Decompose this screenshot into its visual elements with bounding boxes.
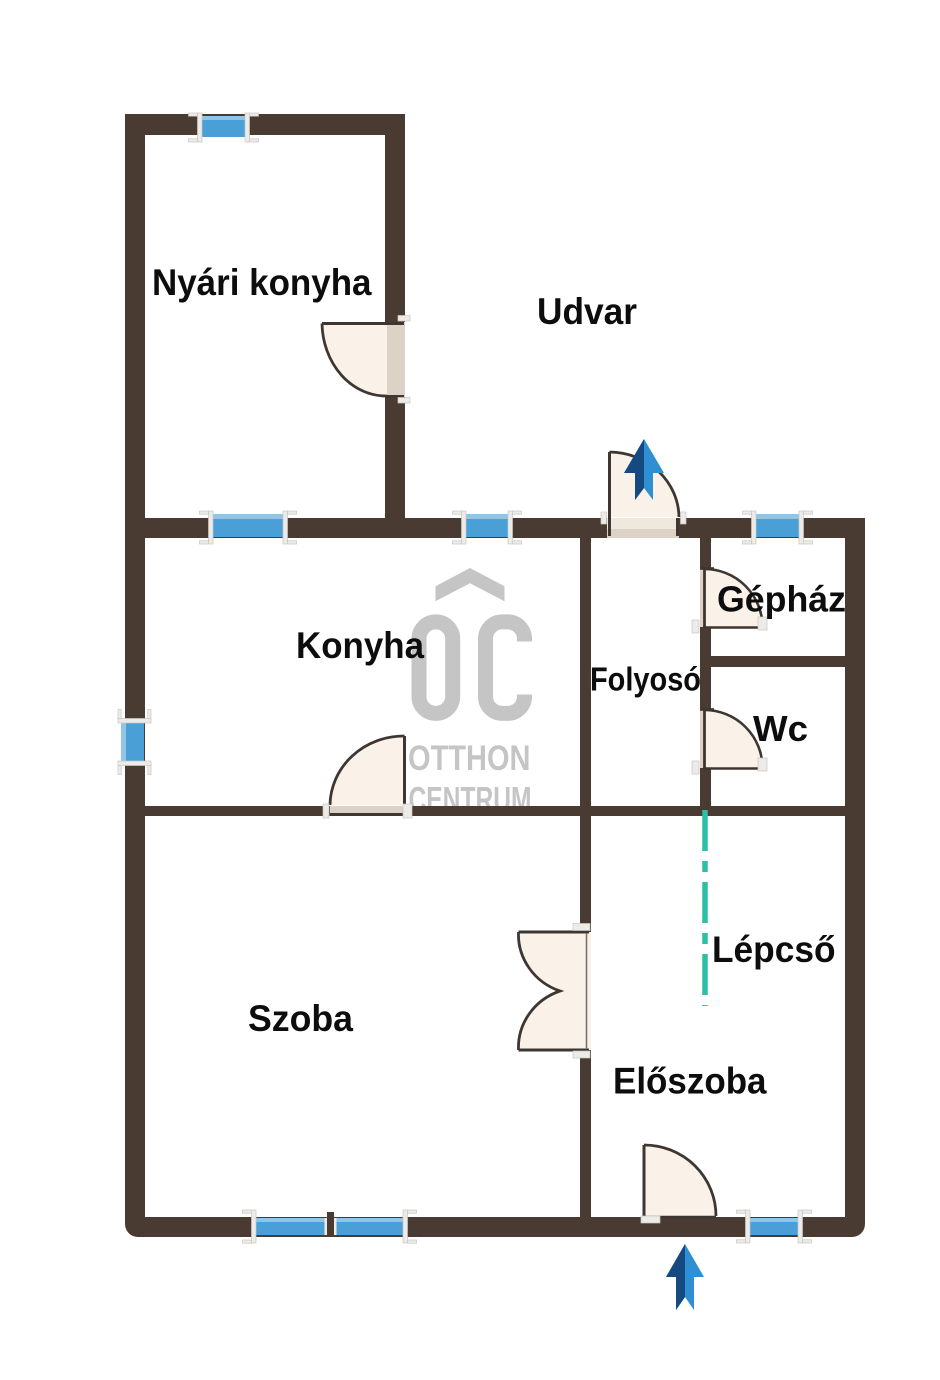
svg-text:Lépcső: Lépcső <box>712 929 836 970</box>
svg-text:Nyári konyha: Nyári konyha <box>152 262 372 303</box>
svg-text:Folyosó: Folyosó <box>590 661 701 698</box>
svg-text:Wc: Wc <box>753 708 808 749</box>
svg-text:Gépház: Gépház <box>717 579 846 620</box>
svg-text:Udvar: Udvar <box>537 291 637 332</box>
svg-text:Előszoba: Előszoba <box>613 1061 767 1102</box>
svg-text:OTTHON: OTTHON <box>408 738 531 778</box>
svg-text:Konyha: Konyha <box>296 625 424 666</box>
svg-text:Szoba: Szoba <box>248 998 353 1039</box>
